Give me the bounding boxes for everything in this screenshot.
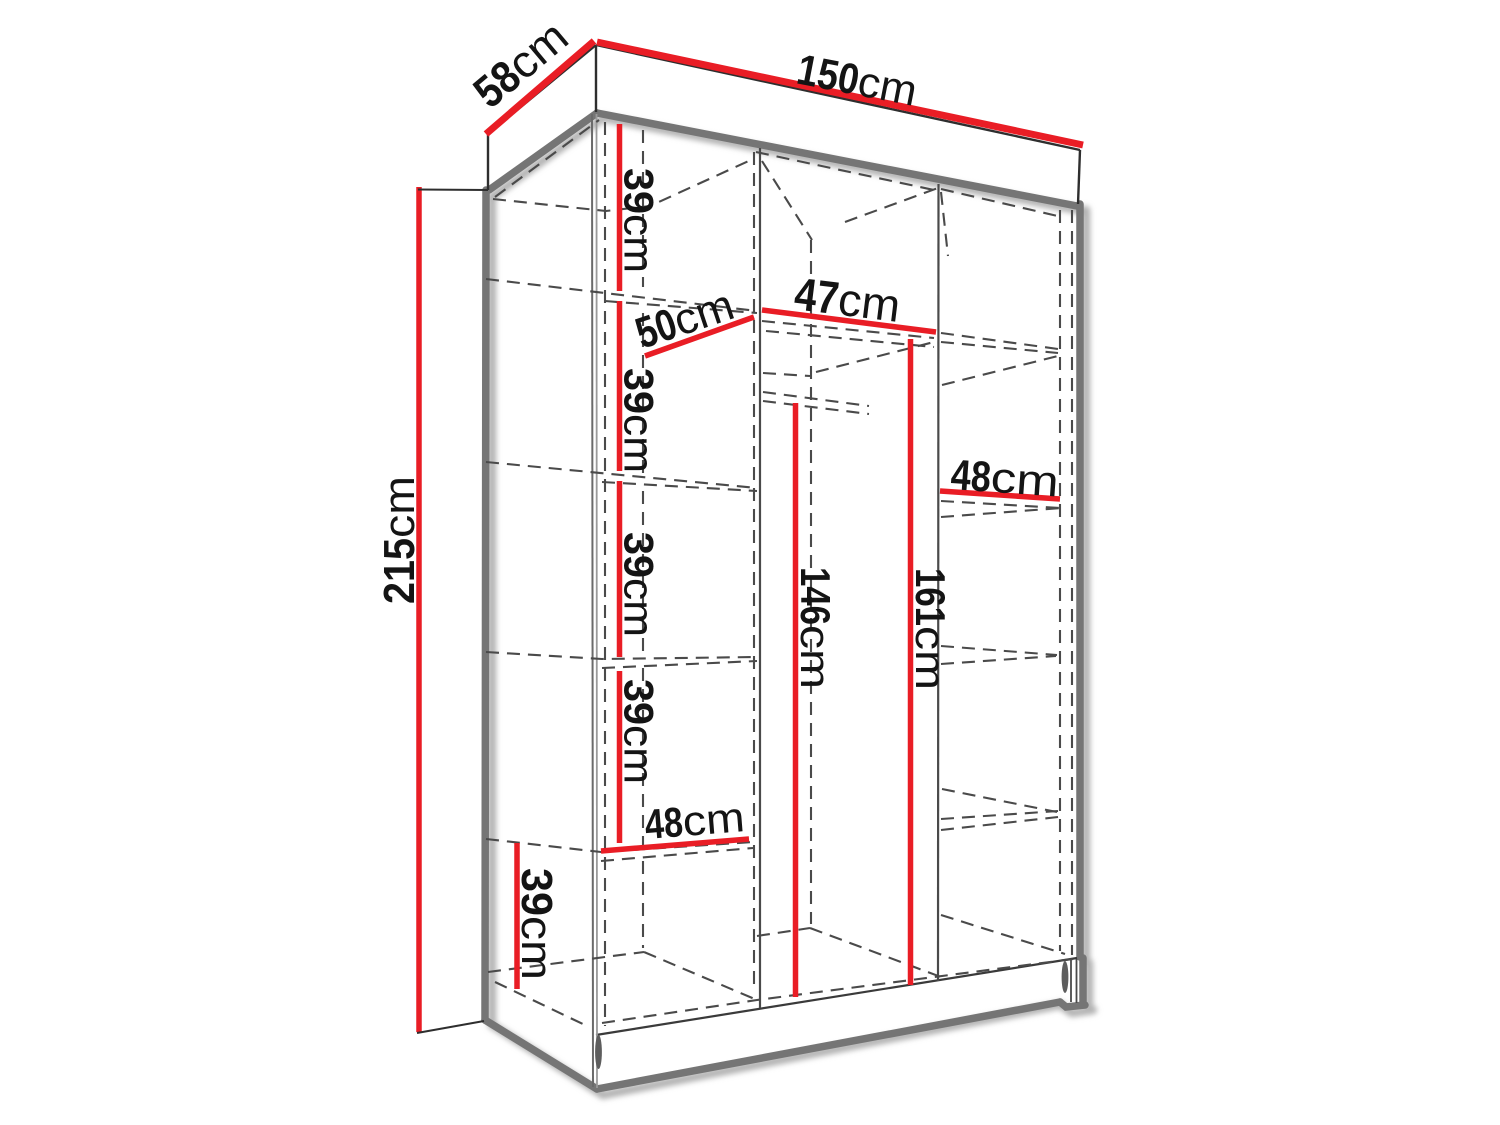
svg-text:cm: cm bbox=[792, 625, 839, 689]
svg-text:48: 48 bbox=[949, 451, 992, 502]
svg-text:cm: cm bbox=[616, 214, 663, 273]
svg-text:146: 146 bbox=[792, 567, 839, 625]
svg-text:cm: cm bbox=[375, 476, 424, 538]
svg-text:cm: cm bbox=[616, 578, 663, 637]
svg-text:cm: cm bbox=[835, 273, 903, 332]
svg-text:39: 39 bbox=[616, 532, 663, 578]
svg-text:215: 215 bbox=[375, 538, 424, 604]
svg-text:cm: cm bbox=[616, 725, 663, 784]
svg-text:39: 39 bbox=[616, 168, 663, 214]
svg-text:47: 47 bbox=[792, 267, 842, 324]
svg-text:161: 161 bbox=[907, 568, 954, 626]
svg-text:cm: cm bbox=[512, 916, 561, 980]
svg-text:39: 39 bbox=[616, 679, 663, 725]
svg-text:48: 48 bbox=[643, 798, 685, 848]
svg-text:cm: cm bbox=[616, 414, 663, 473]
svg-text:cm: cm bbox=[907, 626, 954, 690]
svg-text:cm: cm bbox=[989, 454, 1060, 507]
svg-text:39: 39 bbox=[512, 868, 561, 916]
svg-text:cm: cm bbox=[681, 793, 747, 845]
svg-text:39: 39 bbox=[616, 368, 663, 414]
